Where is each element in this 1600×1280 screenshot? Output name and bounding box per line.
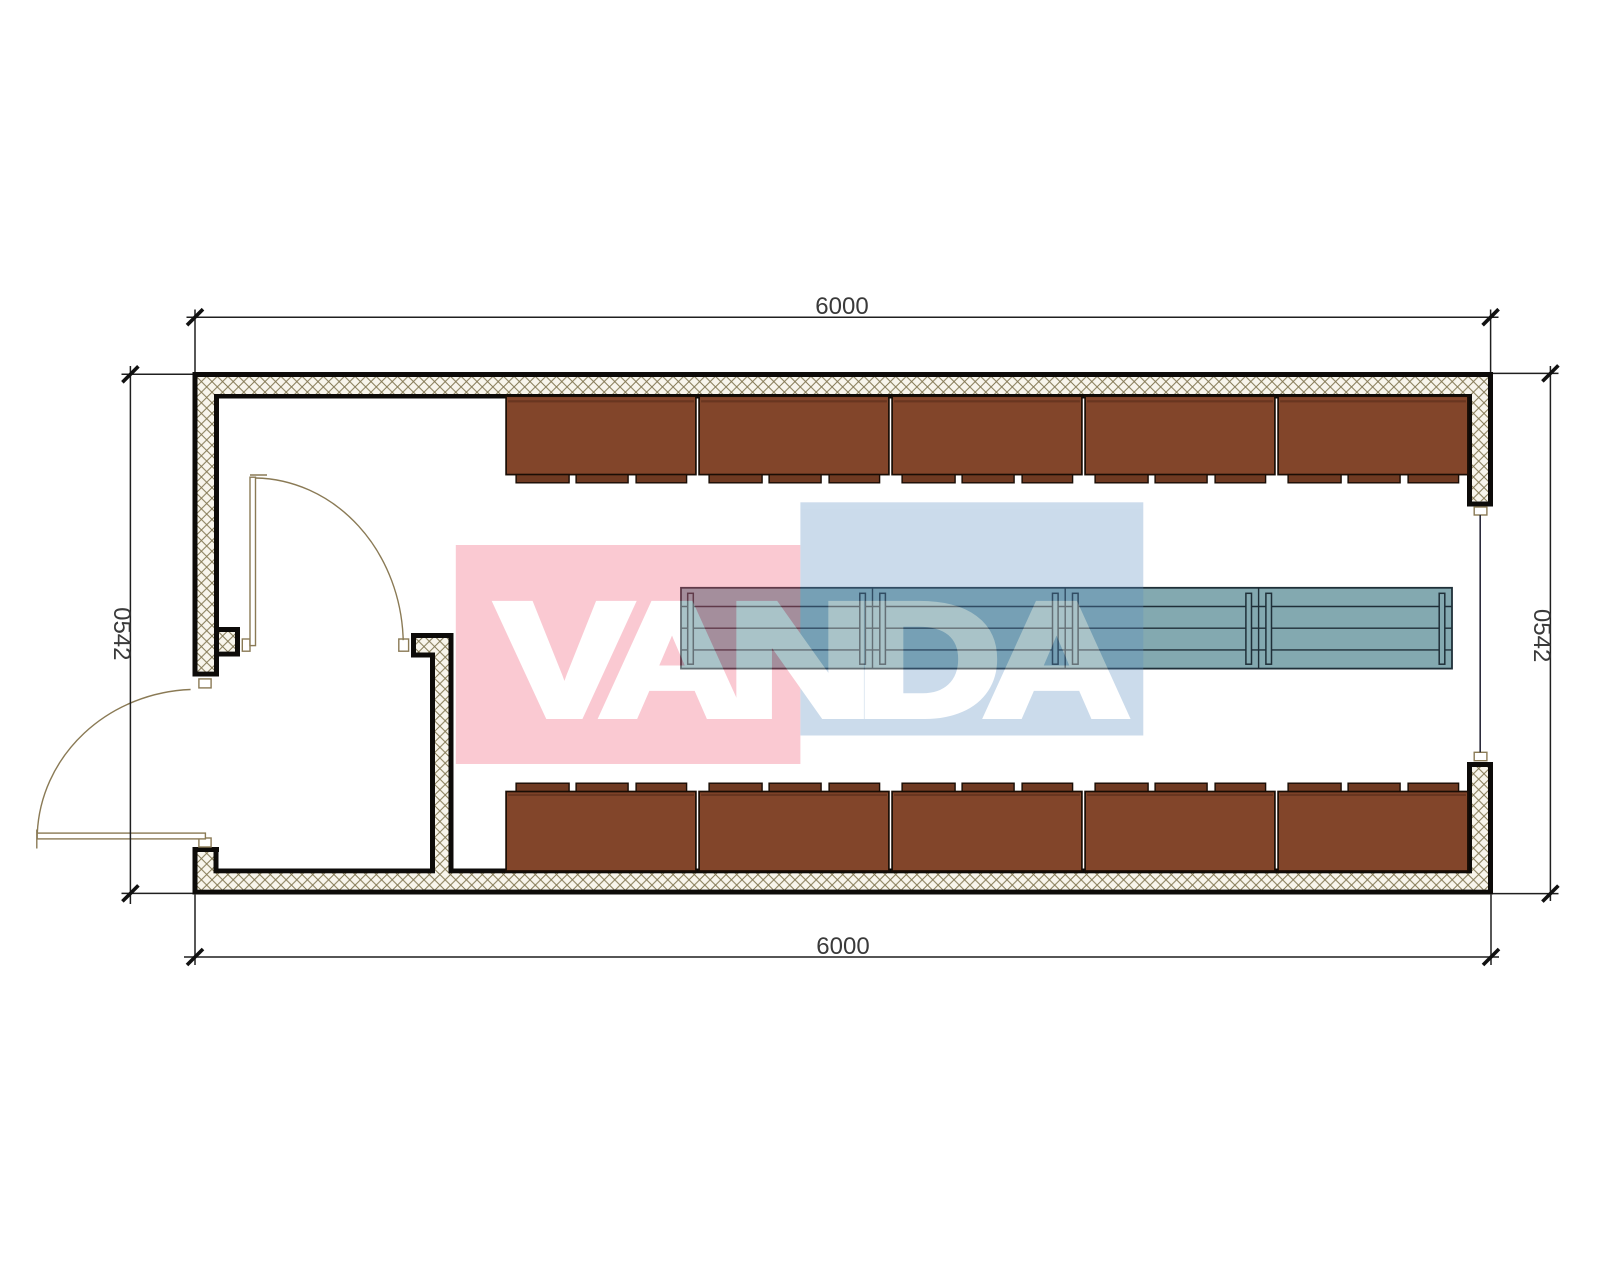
svg-text:0542: 0542	[1528, 609, 1555, 662]
svg-text:0542: 0542	[108, 607, 135, 660]
svg-text:6000: 6000	[815, 293, 868, 320]
svg-text:6000: 6000	[816, 933, 869, 960]
svg-text:VANDA: VANDA	[497, 571, 1123, 749]
